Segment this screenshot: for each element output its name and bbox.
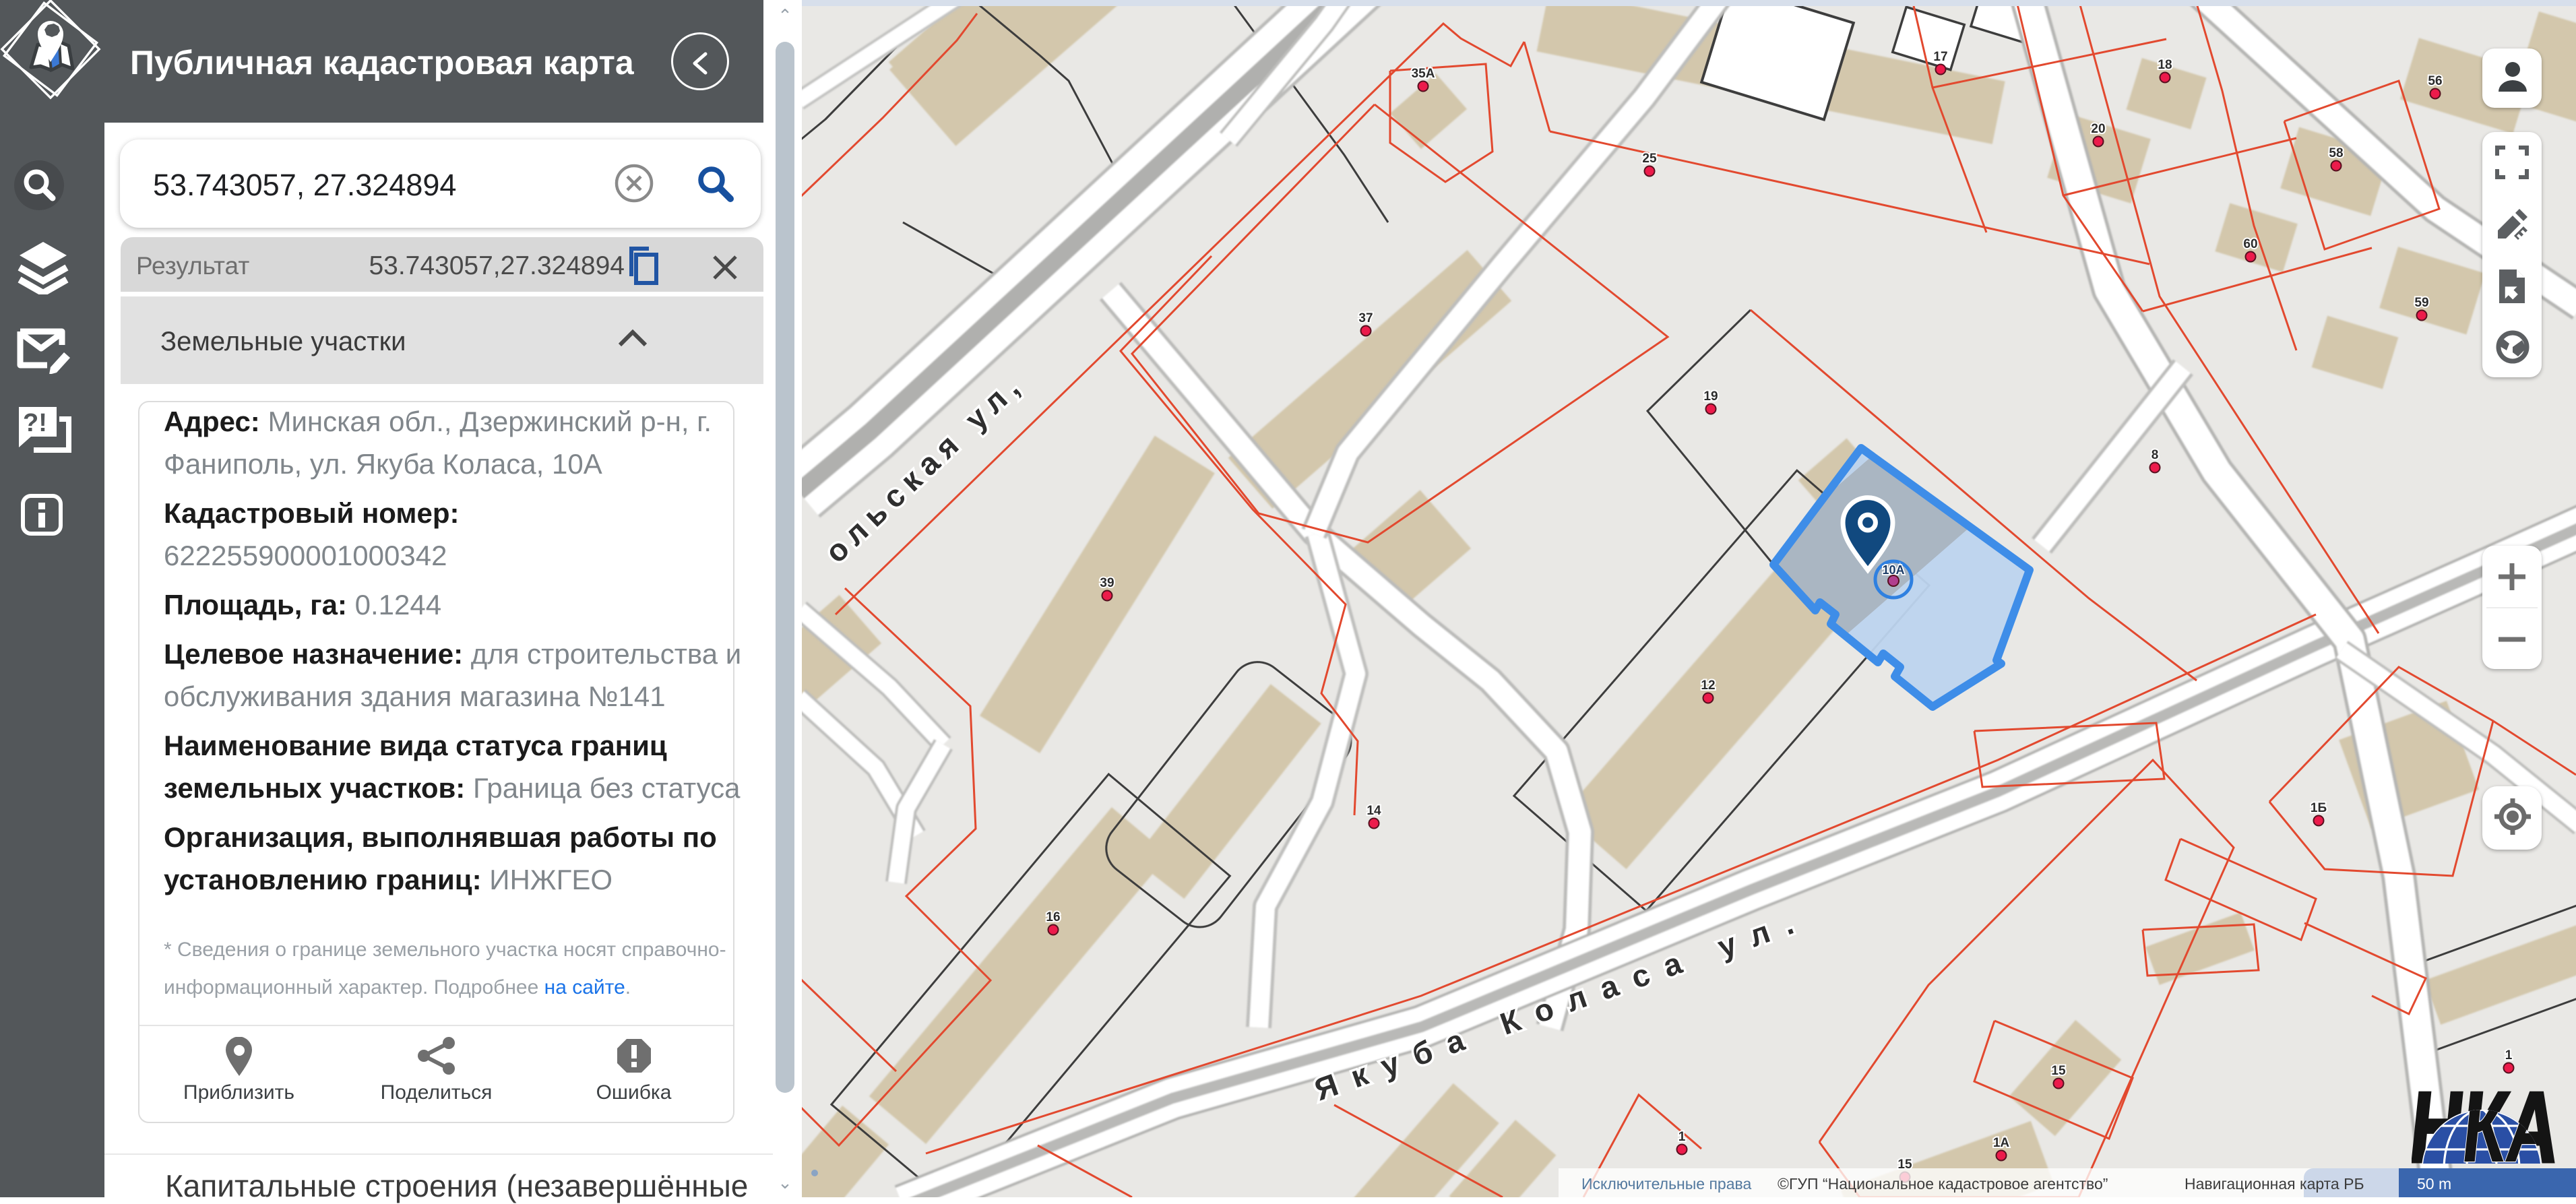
svg-text:58: 58 — [2329, 146, 2343, 160]
svg-text:37: 37 — [1358, 311, 1373, 325]
svg-text:20: 20 — [2091, 122, 2105, 136]
svg-text:14: 14 — [1366, 804, 1381, 818]
svg-text:1: 1 — [2505, 1048, 2513, 1063]
svg-text:1Б: 1Б — [2311, 801, 2327, 815]
svg-text:1А: 1А — [1993, 1136, 2010, 1150]
svg-text:?!: ?! — [23, 409, 47, 437]
svg-text:17: 17 — [1933, 50, 1947, 64]
svg-text:8: 8 — [2151, 448, 2159, 462]
svg-text:56: 56 — [2428, 74, 2442, 88]
svg-text:16: 16 — [1046, 910, 1060, 924]
svg-text:35А: 35А — [1412, 67, 1435, 81]
svg-text:25: 25 — [1642, 152, 1657, 166]
svg-text:12: 12 — [1701, 678, 1715, 693]
svg-text:19: 19 — [1703, 389, 1718, 404]
svg-text:18: 18 — [2158, 58, 2172, 72]
svg-text:39: 39 — [1100, 576, 1114, 590]
svg-text:59: 59 — [2414, 296, 2428, 310]
svg-text:1: 1 — [1678, 1130, 1686, 1144]
svg-text:60: 60 — [2243, 237, 2257, 251]
svg-text:15: 15 — [2051, 1064, 2066, 1078]
